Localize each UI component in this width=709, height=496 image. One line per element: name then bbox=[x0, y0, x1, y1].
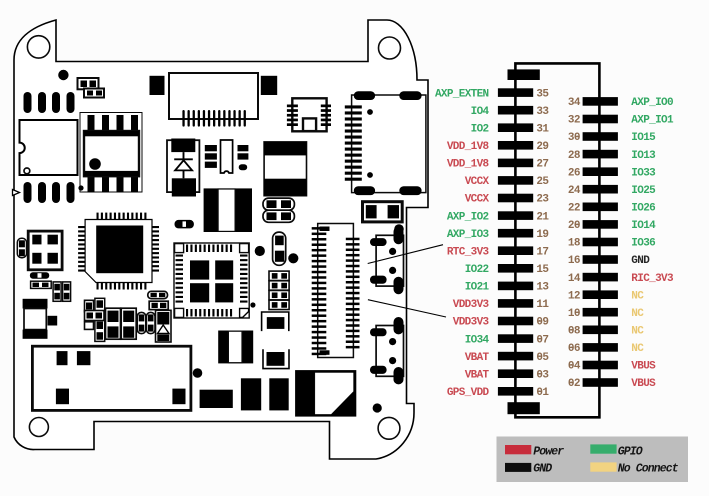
svg-text:IO15: IO15 bbox=[631, 132, 656, 144]
svg-text:GND: GND bbox=[631, 255, 650, 267]
svg-text:27: 27 bbox=[536, 159, 548, 171]
svg-text:IO2: IO2 bbox=[471, 123, 489, 135]
svg-text:22: 22 bbox=[568, 203, 580, 215]
svg-text:VDD3V3: VDD3V3 bbox=[453, 317, 490, 329]
svg-text:16: 16 bbox=[568, 255, 580, 267]
svg-text:NC: NC bbox=[631, 308, 644, 320]
svg-text:AXP_IO1: AXP_IO1 bbox=[631, 115, 674, 127]
svg-text:VDD_1V8: VDD_1V8 bbox=[447, 141, 490, 153]
svg-text:AXP_IO0: AXP_IO0 bbox=[631, 97, 673, 109]
svg-text:IO26: IO26 bbox=[631, 203, 655, 215]
svg-text:Power: Power bbox=[533, 445, 564, 458]
svg-text:VBUS: VBUS bbox=[631, 361, 656, 373]
svg-text:VBAT: VBAT bbox=[465, 369, 490, 381]
svg-text:13: 13 bbox=[536, 282, 549, 294]
svg-text:29: 29 bbox=[536, 141, 548, 153]
svg-text:VCCX: VCCX bbox=[465, 176, 490, 188]
svg-text:04: 04 bbox=[568, 361, 581, 373]
svg-text:NC: NC bbox=[631, 326, 644, 338]
svg-text:09: 09 bbox=[536, 317, 548, 329]
svg-text:NC: NC bbox=[631, 343, 644, 355]
svg-text:AXP_EXTEN: AXP_EXTEN bbox=[435, 88, 489, 100]
svg-text:17: 17 bbox=[536, 246, 548, 258]
svg-text:RTC_3V3: RTC_3V3 bbox=[447, 246, 490, 258]
svg-text:IO13: IO13 bbox=[631, 150, 656, 162]
svg-text:GPS_VDD: GPS_VDD bbox=[447, 387, 490, 399]
svg-text:IO34: IO34 bbox=[465, 334, 490, 346]
svg-text:32: 32 bbox=[568, 115, 580, 127]
svg-text:IO21: IO21 bbox=[465, 282, 490, 294]
svg-text:11: 11 bbox=[536, 299, 549, 311]
svg-text:VCCX: VCCX bbox=[465, 194, 490, 206]
svg-text:05: 05 bbox=[536, 352, 549, 364]
svg-text:18: 18 bbox=[568, 238, 581, 250]
svg-text:IO25: IO25 bbox=[631, 185, 656, 197]
svg-text:GPIO: GPIO bbox=[618, 445, 643, 458]
svg-text:IO14: IO14 bbox=[631, 220, 656, 232]
svg-text:RIC_3V3: RIC_3V3 bbox=[631, 273, 674, 285]
svg-text:30: 30 bbox=[568, 132, 580, 144]
svg-text:25: 25 bbox=[536, 176, 549, 188]
svg-text:20: 20 bbox=[568, 220, 580, 232]
svg-text:IO4: IO4 bbox=[471, 106, 490, 118]
svg-text:VDD_1V8: VDD_1V8 bbox=[447, 159, 490, 171]
svg-text:VBAT: VBAT bbox=[465, 352, 490, 364]
svg-text:03: 03 bbox=[536, 369, 549, 381]
svg-text:26: 26 bbox=[568, 167, 580, 179]
svg-text:IO22: IO22 bbox=[465, 264, 489, 276]
svg-text:24: 24 bbox=[568, 185, 581, 197]
svg-text:06: 06 bbox=[568, 343, 580, 355]
svg-text:28: 28 bbox=[568, 150, 581, 162]
svg-text:10: 10 bbox=[568, 308, 580, 320]
svg-text:07: 07 bbox=[536, 334, 548, 346]
svg-text:No Connect: No Connect bbox=[618, 463, 679, 476]
svg-text:VBUS: VBUS bbox=[631, 378, 656, 390]
svg-text:12: 12 bbox=[568, 290, 580, 302]
svg-text:14: 14 bbox=[568, 273, 581, 285]
svg-text:34: 34 bbox=[568, 97, 581, 109]
svg-text:21: 21 bbox=[536, 211, 549, 223]
svg-text:02: 02 bbox=[568, 378, 580, 390]
svg-text:19: 19 bbox=[536, 229, 548, 241]
svg-text:IO33: IO33 bbox=[631, 167, 656, 179]
svg-text:GND: GND bbox=[533, 463, 552, 476]
svg-text:AXP_IO3: AXP_IO3 bbox=[447, 229, 490, 241]
svg-text:VDD3V3: VDD3V3 bbox=[453, 299, 490, 311]
svg-text:23: 23 bbox=[536, 194, 549, 206]
svg-text:AXP_IO2: AXP_IO2 bbox=[447, 211, 489, 223]
svg-text:IO36: IO36 bbox=[631, 238, 655, 250]
svg-text:01: 01 bbox=[536, 387, 549, 399]
svg-text:35: 35 bbox=[536, 88, 549, 100]
svg-text:08: 08 bbox=[568, 326, 581, 338]
svg-text:33: 33 bbox=[536, 106, 549, 118]
svg-text:NC: NC bbox=[631, 290, 644, 302]
svg-text:31: 31 bbox=[536, 123, 549, 135]
svg-text:15: 15 bbox=[536, 264, 549, 276]
